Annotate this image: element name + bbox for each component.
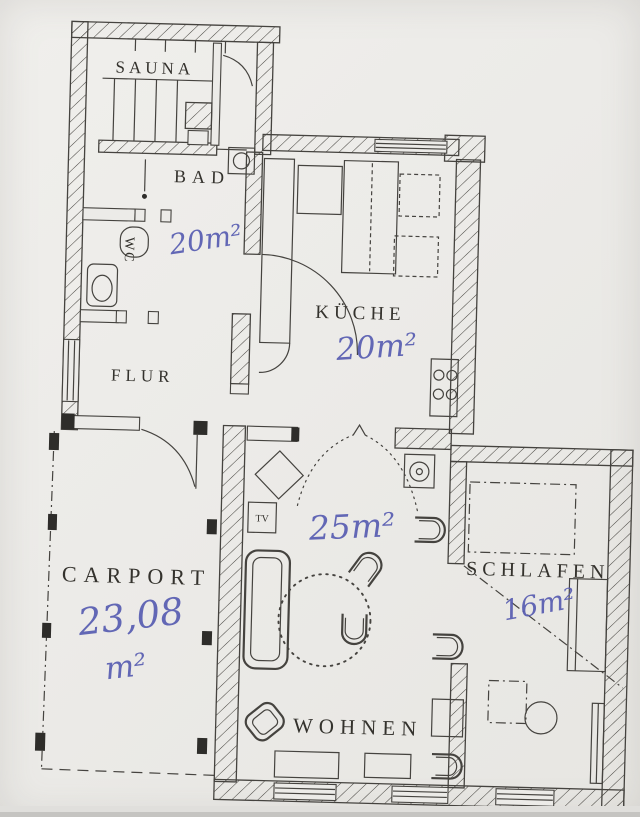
post-corridor-stub <box>291 427 299 441</box>
tv-label: TV <box>255 513 269 524</box>
room-label-sauna: SAUNA <box>115 58 194 79</box>
carport-post <box>42 623 51 638</box>
round-table-icon <box>277 573 371 667</box>
carport-bottom-line <box>41 769 214 776</box>
wall-kueche-wohnen <box>395 428 452 449</box>
shower-point-icon <box>142 159 148 199</box>
scanned-floor-plan-page: TV <box>0 0 640 817</box>
windows <box>52 131 571 806</box>
wall-corridor-stub <box>247 426 297 441</box>
window-bottom-1 <box>274 783 336 801</box>
wall-wc-divider-top <box>83 208 135 221</box>
window-flur-left <box>62 339 80 401</box>
bad-wall-line <box>217 149 247 150</box>
carport-post <box>35 733 45 751</box>
floor-plan-drawing: TV <box>0 0 640 817</box>
sideboard-icon <box>364 753 411 778</box>
area-annotation-carport-unit: m² <box>103 647 149 688</box>
wall-schlafen-left-upper <box>448 461 467 563</box>
toilet-icon <box>87 264 118 307</box>
area-annotation-wohnen: 25m² <box>307 505 396 548</box>
area-annotation-bad: 20m² <box>166 218 244 262</box>
wall-wc-divider-bottom <box>80 310 118 323</box>
room-label-bad: BAD <box>174 166 231 187</box>
room-label-wohnen: WOHNEN <box>293 713 423 740</box>
carport-post <box>197 738 207 754</box>
wall-flur-right <box>231 314 251 384</box>
wall-flur-right-jamb <box>230 384 248 394</box>
radiator-icon <box>590 703 604 783</box>
area-annotation-kueche: 20m² <box>334 327 418 368</box>
carport-post <box>49 433 59 450</box>
room-label-carport: CARPORT <box>62 561 212 590</box>
washing-machine-icon <box>404 454 435 488</box>
wall-kueche-top-corner <box>445 135 486 162</box>
wall-schlafen-left-lower <box>448 664 467 788</box>
wall-flur-south <box>73 416 139 431</box>
couch-icon <box>243 550 290 669</box>
chair-icon <box>349 548 386 586</box>
post-flur-south-left <box>61 413 74 429</box>
walls <box>52 21 640 810</box>
desk-icon <box>488 681 527 724</box>
window-kueche-top <box>375 139 447 153</box>
room-label-schlafen: SCHLAFEN <box>466 558 610 584</box>
sauna-door-arc <box>222 55 253 86</box>
wall-wohnen-left <box>214 425 245 781</box>
schlafen-door-swing <box>461 566 626 688</box>
carport-left-line <box>41 431 54 769</box>
flur-door <box>116 311 158 324</box>
desk-chair-icon <box>525 701 558 734</box>
scan-edge-shadow <box>0 812 640 817</box>
wall-sauna-top <box>72 21 280 42</box>
flur-carport-door <box>140 429 197 488</box>
sauna-heater-icon <box>185 102 212 145</box>
carport-post <box>202 631 212 645</box>
room-labels: SAUNA BAD WC FLUR KÜCHE WOHNEN SCHLAFEN … <box>58 56 623 745</box>
room-label-kueche: KÜCHE <box>315 302 406 325</box>
wall-kueche-right <box>449 159 480 434</box>
carport-post <box>207 519 217 534</box>
sideboard-icon <box>274 751 339 779</box>
wall-schlafen-top <box>451 445 633 466</box>
bed-icon <box>468 482 576 555</box>
tv-table: TV <box>248 502 277 533</box>
post-flur-south-right <box>193 421 207 435</box>
side-table-diamond <box>255 450 304 499</box>
wc-door <box>135 209 171 222</box>
window-bottom-3 <box>496 789 554 807</box>
window-bottom-2 <box>392 786 448 803</box>
area-annotation-schlafen: 16m² <box>500 582 578 628</box>
armchair-icon <box>242 699 287 744</box>
sauna-anteroom-divider <box>211 43 222 145</box>
room-label-wc: WC <box>121 237 137 264</box>
carport-post <box>48 514 57 530</box>
area-annotation-carport-value: 23,08 <box>75 589 186 644</box>
room-label-flur: FLUR <box>111 366 175 387</box>
